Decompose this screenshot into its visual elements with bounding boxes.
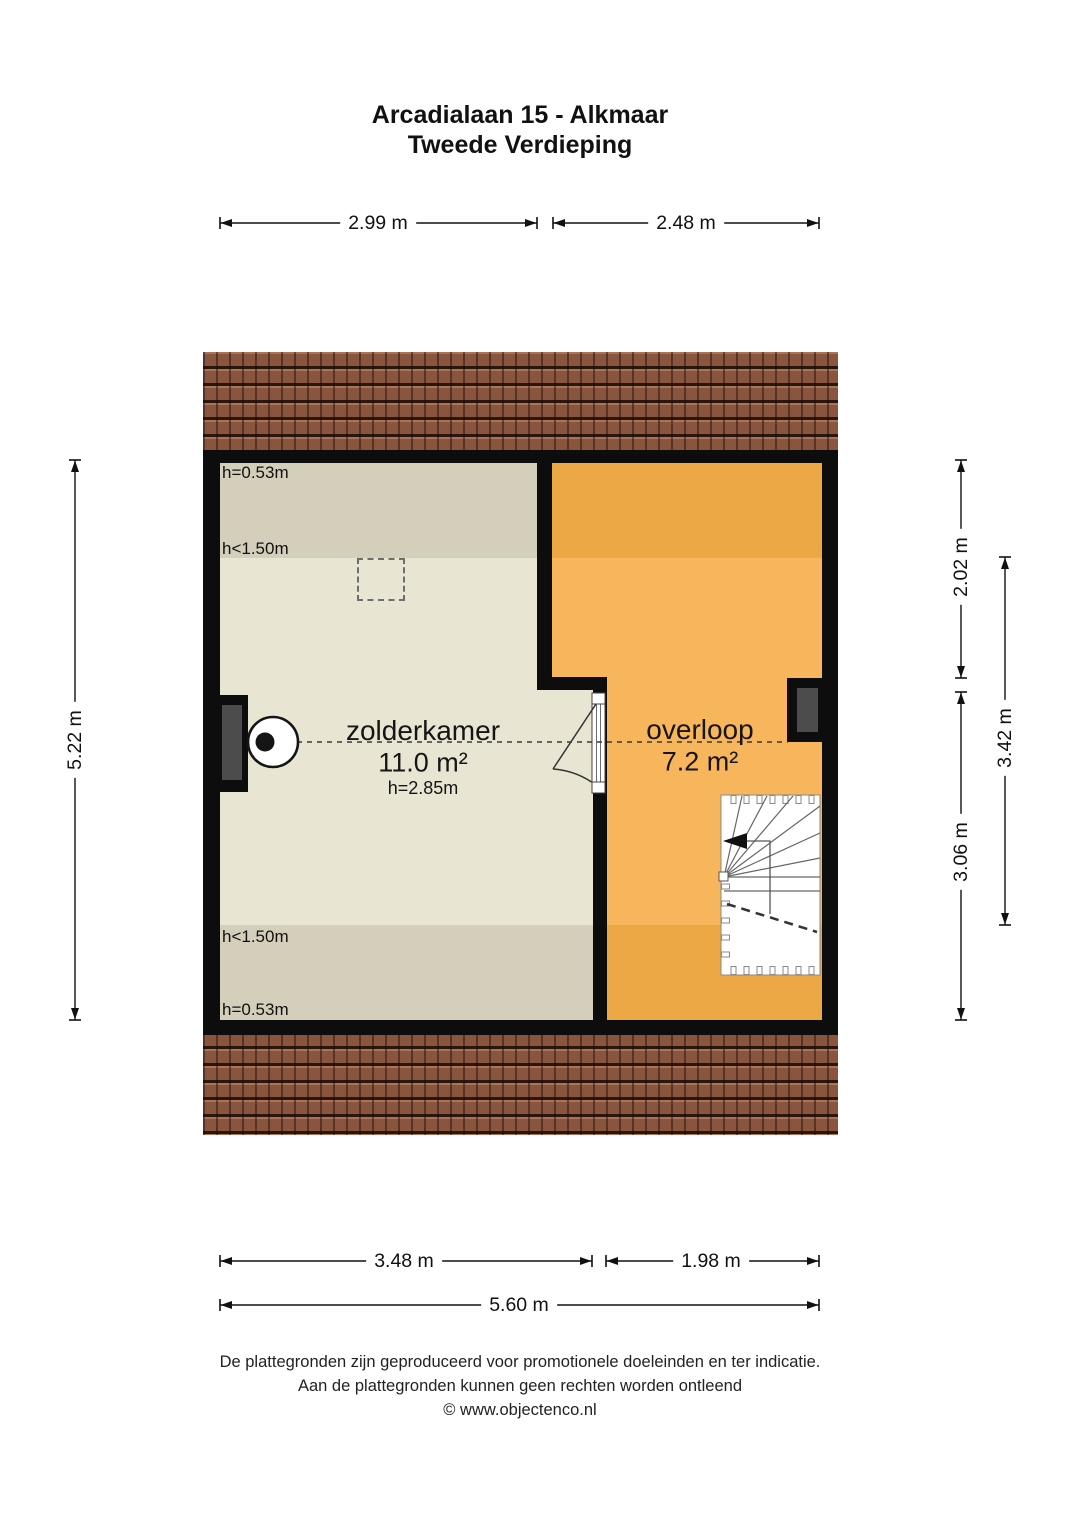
disclaimer-line2: Aan de plattegronden kunnen geen rechten… bbox=[0, 1374, 1040, 1398]
overloop-low-headroom-bottom bbox=[607, 925, 822, 1020]
interior-wall-stub bbox=[537, 677, 607, 690]
dim-label-bottom-right: 1.98 m bbox=[673, 1250, 749, 1272]
dim-label-top-right: 2.48 m bbox=[648, 212, 724, 234]
dim-label-right-outer: 3.42 m bbox=[994, 700, 1016, 776]
roof-hatch-outline bbox=[357, 558, 405, 601]
dim-label-top-left: 2.99 m bbox=[340, 212, 416, 234]
dim-label-bottom-left: 3.48 m bbox=[366, 1250, 442, 1272]
room-height-zolderkamer: h=2.85m bbox=[388, 778, 459, 798]
room-name-zolderkamer: zolderkamer bbox=[346, 716, 500, 746]
room-name-overloop: overloop bbox=[646, 715, 753, 745]
room-area-zolderkamer: 11.0 m² bbox=[378, 749, 468, 778]
dim-label-right-lower: 3.06 m bbox=[950, 814, 972, 890]
roof-bottom bbox=[203, 1032, 838, 1135]
disclaimer-line1: De plattegronden zijn geproduceerd voor … bbox=[0, 1350, 1040, 1374]
zone-label-bottom-eave: h=0.53m bbox=[222, 1001, 289, 1019]
page-title: Arcadialaan 15 - Alkmaar Tweede Verdiepi… bbox=[0, 100, 1040, 160]
title-floor: Tweede Verdieping bbox=[0, 130, 1040, 160]
room-area-overloop: 7.2 m² bbox=[662, 748, 739, 777]
zone-label-top-kneewall: h<1.50m bbox=[222, 540, 289, 558]
left-dormer-window bbox=[222, 705, 242, 780]
overloop-low-headroom-top bbox=[552, 463, 822, 558]
roof-top bbox=[203, 352, 838, 452]
title-address: Arcadialaan 15 - Alkmaar bbox=[0, 100, 1040, 130]
copyright-line: © www.objectenco.nl bbox=[0, 1398, 1040, 1422]
dim-label-right-upper: 2.02 m bbox=[950, 529, 972, 605]
right-dormer-window bbox=[797, 688, 818, 732]
floorplan-page: Arcadialaan 15 - Alkmaar Tweede Verdiepi… bbox=[0, 0, 1080, 1527]
zone-label-bottom-kneewall: h<1.50m bbox=[222, 928, 289, 946]
dim-label-left: 5.22 m bbox=[64, 702, 86, 778]
disclaimer: De plattegronden zijn geproduceerd voor … bbox=[0, 1350, 1040, 1422]
zone-label-top-eave: h=0.53m bbox=[222, 464, 289, 482]
dim-label-bottom-total: 5.60 m bbox=[481, 1294, 557, 1316]
